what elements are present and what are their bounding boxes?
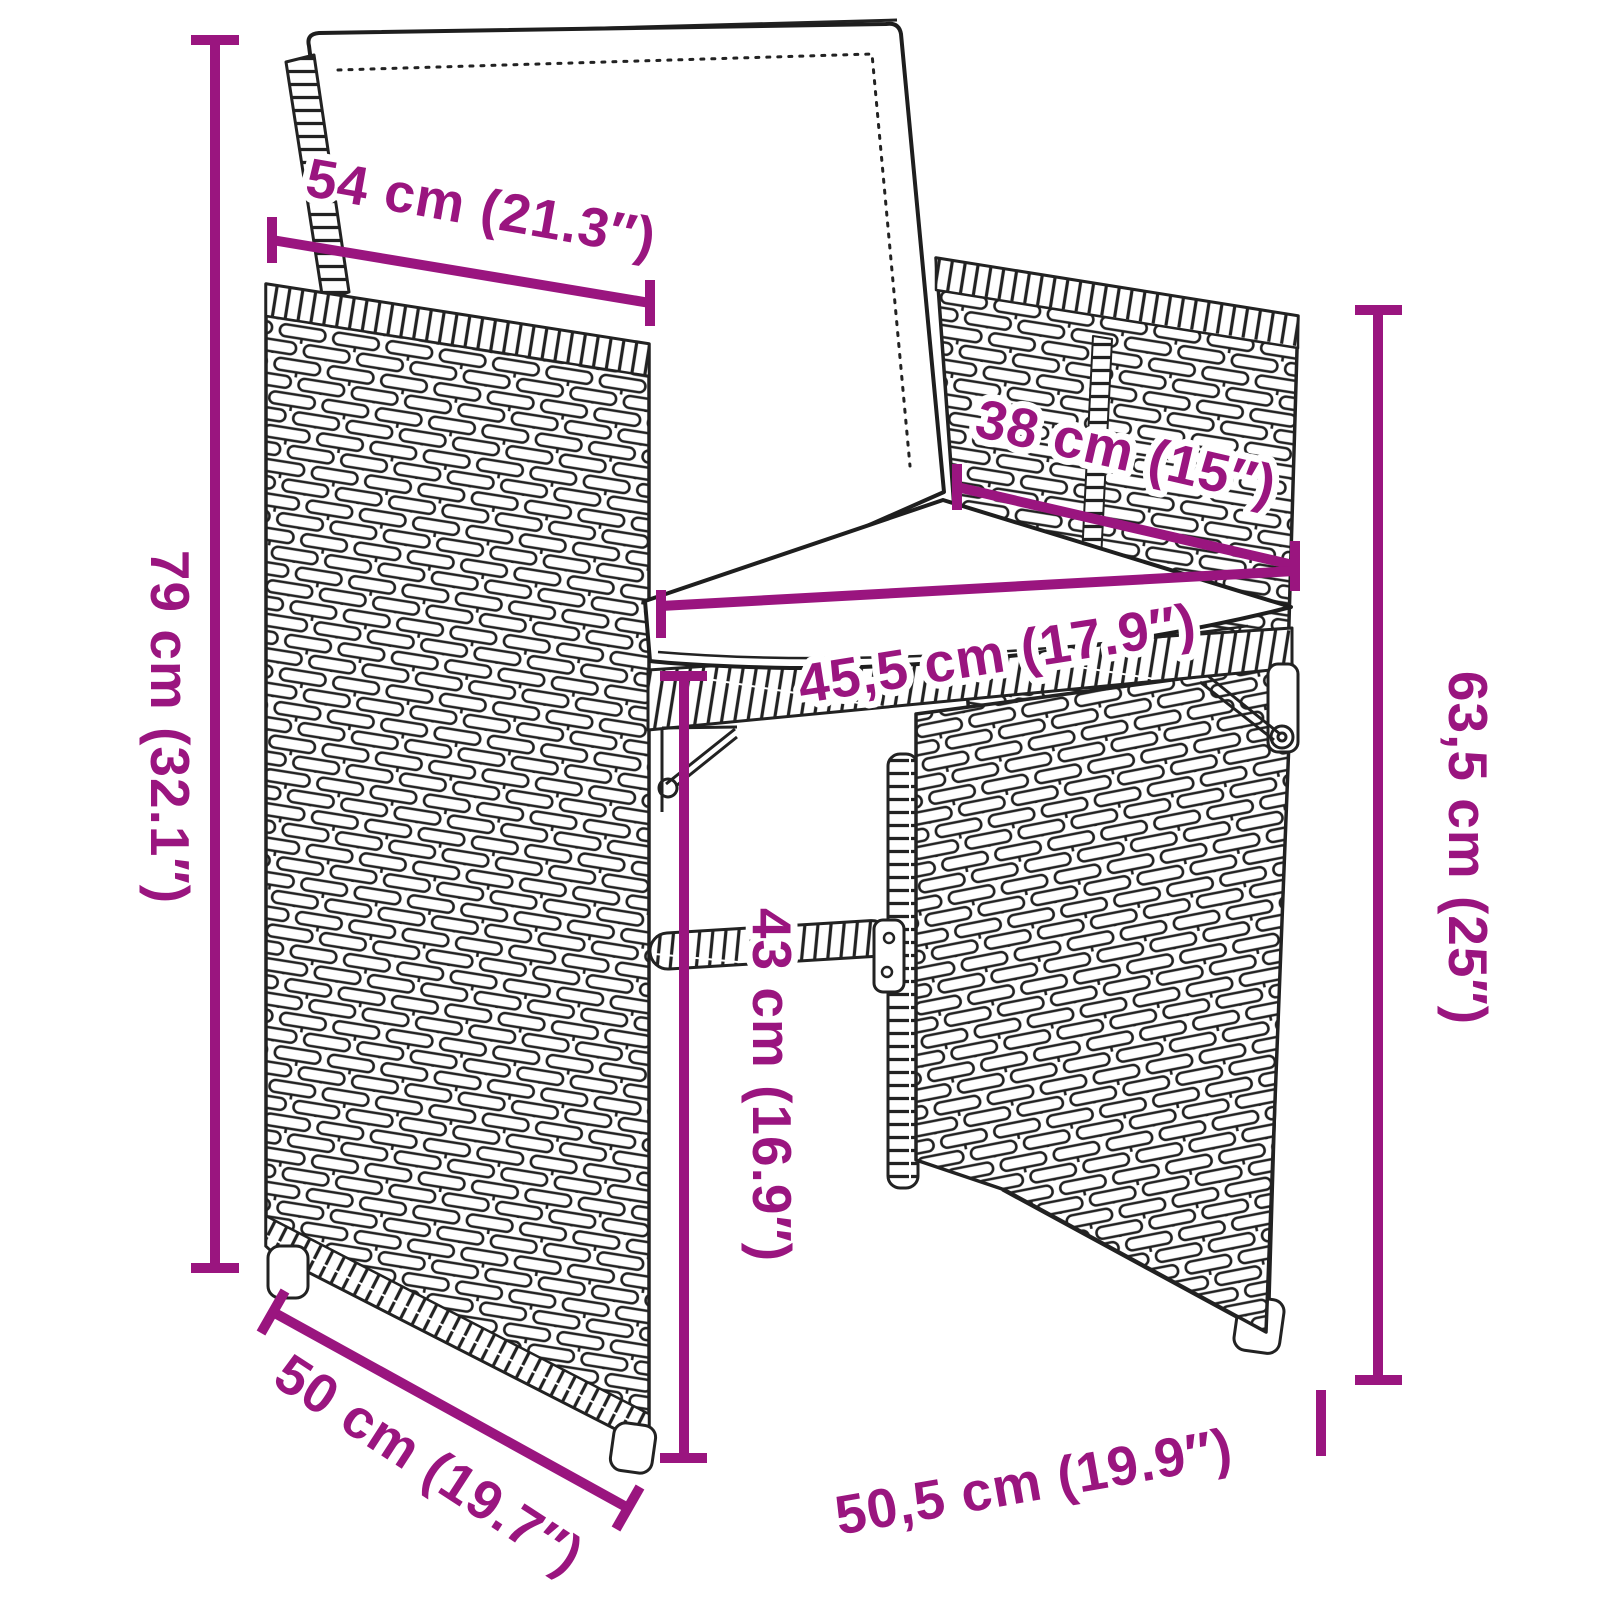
screw: [882, 967, 892, 977]
screw: [884, 933, 894, 943]
left-front-foot: [268, 1246, 308, 1298]
label-overall-height: 79 cm (32.1″): [139, 550, 201, 904]
under-seat-panel: [916, 664, 1292, 1332]
dimension-back-height: [1355, 310, 1402, 1380]
left-corner-bracket: [659, 727, 737, 812]
left-arm-panel: [266, 284, 657, 1475]
product-dimension-diagram: 54 cm (21.3″) 38 cm (15″) 79 cm (32.1″) …: [0, 0, 1600, 1600]
diagram-canvas: 54 cm (21.3″) 38 cm (15″) 79 cm (32.1″) …: [0, 0, 1600, 1600]
label-seat-height: 43 cm (16.9″): [741, 908, 803, 1262]
left-rear-foot: [609, 1421, 657, 1474]
label-overall-width: 50,5 cm (19.9″): [830, 1416, 1237, 1547]
crossbar-mount-plate: [874, 920, 904, 992]
dimension-seat-height: [660, 676, 707, 1458]
label-back-height: 63,5 cm (25″): [1437, 671, 1499, 1025]
